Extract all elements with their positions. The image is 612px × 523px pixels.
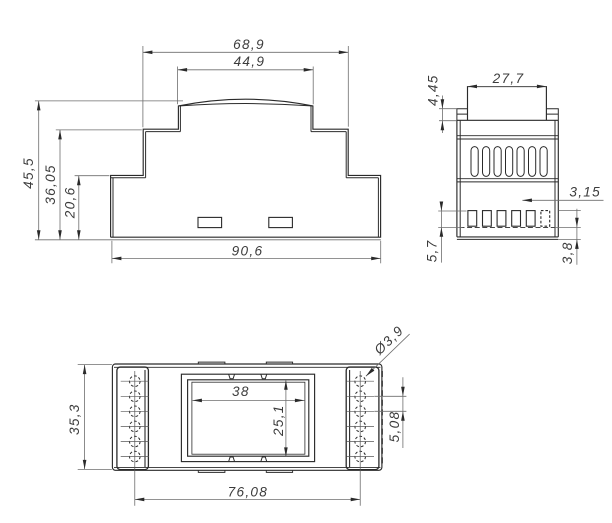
svg-text:4,45: 4,45	[426, 74, 441, 106]
svg-text:36,05: 36,05	[43, 164, 58, 205]
svg-text:90,6: 90,6	[232, 243, 264, 258]
svg-text:20,6: 20,6	[63, 187, 78, 220]
svg-text:68,9: 68,9	[233, 37, 265, 52]
svg-text:38: 38	[232, 384, 250, 399]
svg-text:25,1: 25,1	[271, 404, 286, 437]
svg-text:35,3: 35,3	[67, 403, 82, 435]
svg-text:76,08: 76,08	[228, 484, 269, 499]
svg-text:5,7: 5,7	[424, 239, 439, 262]
svg-text:27,7: 27,7	[492, 71, 525, 86]
svg-text:3,15: 3,15	[569, 185, 601, 200]
svg-text:45,5: 45,5	[21, 157, 36, 189]
svg-text:44,9: 44,9	[234, 54, 266, 69]
svg-text:5,08: 5,08	[387, 411, 402, 443]
svg-text:3,8: 3,8	[560, 241, 575, 264]
